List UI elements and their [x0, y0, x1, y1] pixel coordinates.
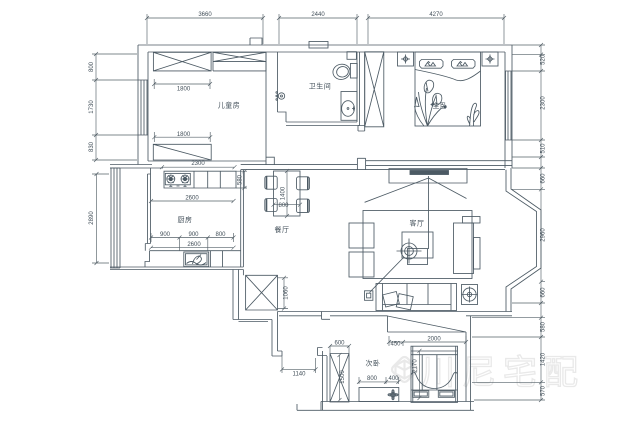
svg-text:3660: 3660: [198, 12, 212, 18]
svg-text:主卧: 主卧: [433, 101, 448, 110]
svg-text:2890: 2890: [89, 211, 95, 225]
svg-text:600: 600: [334, 341, 345, 347]
svg-text:1420: 1420: [541, 352, 547, 366]
svg-text:2960: 2960: [541, 228, 547, 242]
svg-text:4270: 4270: [429, 12, 443, 18]
svg-text:2300: 2300: [191, 161, 205, 167]
svg-text:580: 580: [541, 321, 547, 332]
svg-text:儿童房: 儿童房: [218, 101, 241, 110]
svg-text:2440: 2440: [311, 12, 325, 18]
svg-text:客厅: 客厅: [410, 219, 425, 228]
svg-text:1140: 1140: [293, 372, 307, 378]
svg-text:800: 800: [367, 376, 378, 382]
svg-text:900: 900: [160, 232, 171, 238]
svg-text:2300: 2300: [541, 96, 547, 110]
svg-text:450: 450: [390, 342, 401, 348]
svg-text:1800: 1800: [177, 87, 191, 93]
svg-text:1060: 1060: [284, 286, 290, 300]
svg-text:餐厅: 餐厅: [275, 225, 290, 234]
svg-text:2170: 2170: [413, 359, 419, 373]
svg-text:660: 660: [541, 287, 547, 298]
svg-text:2600: 2600: [187, 242, 201, 248]
svg-text:2000: 2000: [427, 337, 441, 343]
svg-text:800: 800: [89, 61, 95, 72]
svg-text:卫生间: 卫生间: [309, 82, 332, 91]
svg-text:900: 900: [188, 232, 199, 238]
svg-text:1400: 1400: [281, 186, 287, 200]
svg-text:660: 660: [541, 173, 547, 184]
svg-text:400: 400: [388, 376, 399, 382]
svg-text:580: 580: [238, 174, 244, 185]
svg-text:厨房: 厨房: [178, 215, 193, 224]
svg-text:520: 520: [541, 54, 547, 65]
svg-text:川尼宅配: 川尼宅配: [421, 354, 585, 392]
svg-text:1500: 1500: [340, 370, 346, 384]
svg-text:1800: 1800: [177, 132, 191, 138]
svg-text:510: 510: [541, 143, 547, 154]
svg-text:830: 830: [89, 141, 95, 152]
svg-text:800: 800: [278, 203, 289, 209]
svg-text:1730: 1730: [89, 100, 95, 114]
svg-text:800: 800: [215, 232, 226, 238]
svg-text:次卧: 次卧: [366, 359, 381, 368]
svg-text:570: 570: [541, 385, 547, 396]
svg-text:2600: 2600: [185, 196, 199, 202]
